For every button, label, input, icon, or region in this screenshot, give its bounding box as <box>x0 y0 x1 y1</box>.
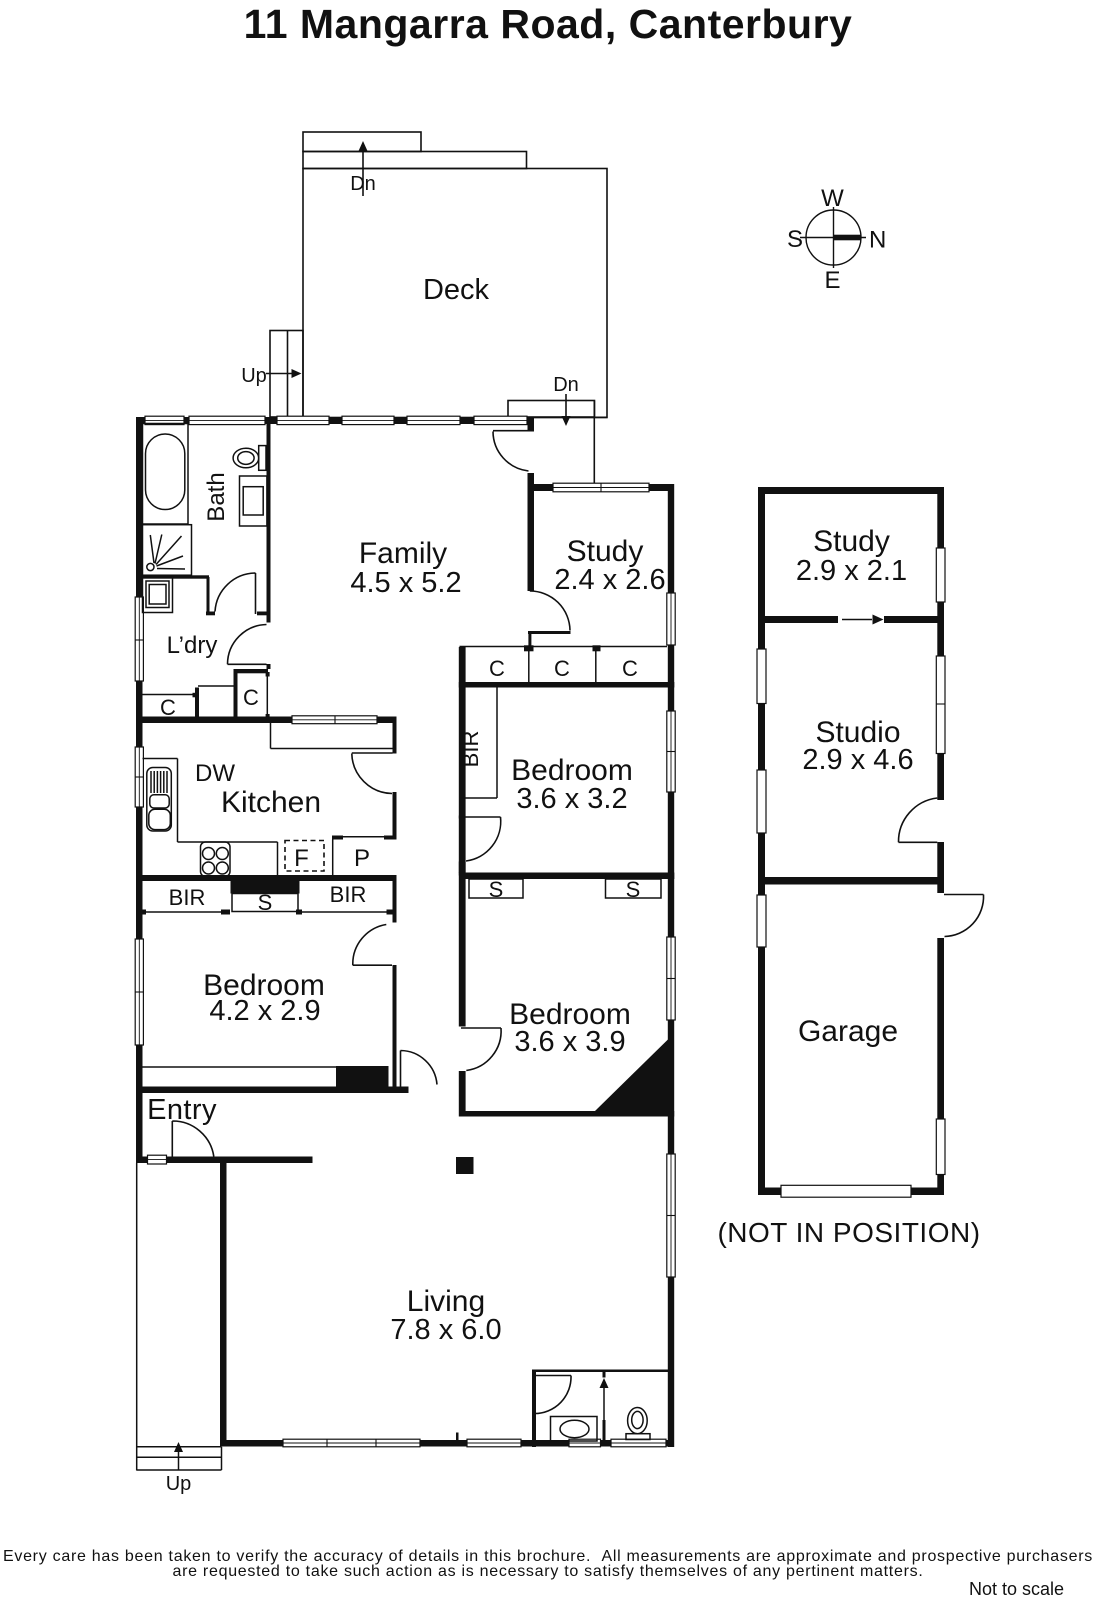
svg-text:S: S <box>787 226 803 253</box>
svg-text:2.9 x 2.1: 2.9 x 2.1 <box>796 555 907 587</box>
svg-text:Entry: Entry <box>147 1094 217 1126</box>
svg-text:BIR: BIR <box>458 731 483 768</box>
svg-text:Dn: Dn <box>553 374 579 396</box>
svg-text:2.4 x 2.6: 2.4 x 2.6 <box>554 564 665 596</box>
svg-text:Dn: Dn <box>350 173 376 195</box>
svg-text:C: C <box>160 695 176 720</box>
svg-text:W: W <box>821 185 844 212</box>
svg-text:BIR: BIR <box>169 885 206 910</box>
svg-text:7.8 x 6.0: 7.8 x 6.0 <box>390 1314 501 1346</box>
svg-text:P: P <box>354 845 370 872</box>
svg-text:Up: Up <box>241 365 267 387</box>
svg-text:S: S <box>258 890 273 915</box>
svg-text:S: S <box>626 877 641 902</box>
svg-text:N: N <box>869 227 886 254</box>
svg-text:Garage: Garage <box>798 1015 898 1048</box>
svg-text:4.2 x 2.9: 4.2 x 2.9 <box>209 995 320 1027</box>
svg-text:C: C <box>622 656 638 681</box>
svg-text:C: C <box>554 656 570 681</box>
svg-text:Study: Study <box>813 525 890 558</box>
svg-text:C: C <box>489 656 505 681</box>
svg-text:Family: Family <box>359 537 447 570</box>
svg-text:L’dry: L’dry <box>167 632 218 659</box>
svg-text:Not to scale: Not to scale <box>969 1579 1064 1599</box>
svg-text:2.9 x 4.6: 2.9 x 4.6 <box>802 744 913 776</box>
svg-text:E: E <box>824 267 840 294</box>
svg-text:Bath: Bath <box>203 472 230 521</box>
svg-text:S: S <box>489 877 504 902</box>
svg-text:F: F <box>294 845 309 872</box>
svg-text:Up: Up <box>166 1473 192 1495</box>
svg-text:Kitchen: Kitchen <box>221 786 321 819</box>
svg-text:C: C <box>243 685 259 710</box>
svg-text:are requested to take such act: are requested to take such action as is … <box>172 1563 923 1580</box>
svg-text:DW: DW <box>195 760 235 787</box>
svg-text:(NOT IN POSITION): (NOT IN POSITION) <box>717 1217 980 1248</box>
svg-text:BIR: BIR <box>330 882 367 907</box>
svg-text:3.6 x 3.2: 3.6 x 3.2 <box>516 783 627 815</box>
svg-text:3.6 x 3.9: 3.6 x 3.9 <box>514 1026 625 1058</box>
svg-text:Deck: Deck <box>423 274 490 306</box>
svg-text:4.5 x 5.2: 4.5 x 5.2 <box>350 567 461 599</box>
svg-text:11 Mangarra Road, Canterbury: 11 Mangarra Road, Canterbury <box>244 1 853 47</box>
